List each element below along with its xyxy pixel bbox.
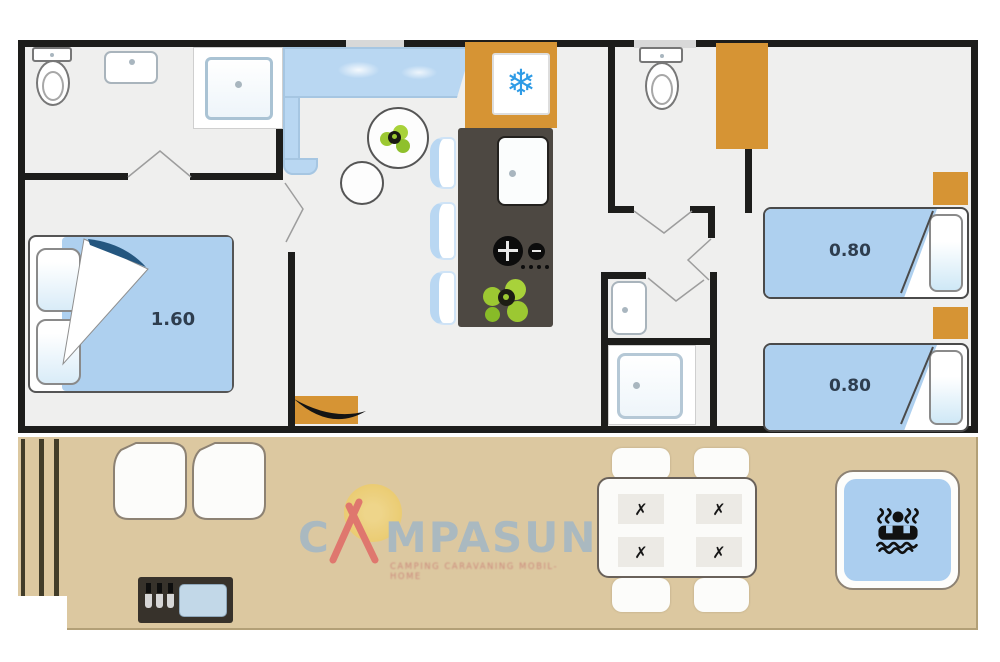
wall: [25, 173, 128, 180]
toilet-bowl: [645, 62, 679, 110]
dining-table: ✗ ✗ ✗ ✗: [597, 477, 757, 578]
shower: [193, 47, 283, 129]
burner-small: [528, 243, 545, 260]
bed-pillow: [36, 248, 81, 312]
logo-tagline: CAMPING CARAVANING MOBIL-HOME: [390, 562, 570, 582]
terrace-step: [21, 439, 25, 596]
knob: [537, 265, 541, 269]
shower: [608, 345, 696, 425]
single-bed: 0.80: [763, 207, 969, 299]
island-sink: [497, 136, 549, 206]
snowflake-icon: ❄: [506, 66, 536, 102]
bar-stool: [430, 202, 456, 260]
wall: [288, 252, 295, 426]
grill-tool: [146, 583, 151, 593]
cutlery-icon: ✗: [634, 543, 647, 562]
cutlery-icon: ✗: [634, 500, 647, 519]
plant: [380, 124, 414, 156]
terrace-step: [39, 439, 44, 596]
wall: [608, 206, 634, 213]
dining-chair: [694, 448, 749, 480]
grill-tool: [157, 583, 162, 593]
kitchen-counter-arm: [283, 96, 300, 162]
bar-stool: [430, 137, 456, 189]
terrace-notch: [18, 596, 67, 630]
wardrobe: [716, 43, 768, 149]
window-kitchen: [346, 40, 404, 48]
double-bed: 1.60: [28, 235, 234, 393]
bed-pillow: [36, 319, 81, 385]
washbasin: [104, 51, 158, 84]
knob: [521, 265, 525, 269]
kitchen-counter: [283, 47, 472, 98]
plancha-surface: [179, 584, 227, 617]
terrace-step: [54, 439, 59, 596]
cutlery-icon: ✗: [712, 500, 725, 519]
toilet-tank: [639, 47, 683, 63]
wall: [608, 338, 710, 345]
wall: [608, 47, 615, 213]
wall: [601, 272, 608, 426]
bed-size-label: 0.80: [815, 376, 885, 396]
knob: [529, 265, 533, 269]
cutlery-icon: ✗: [712, 543, 725, 562]
wall: [710, 272, 717, 426]
nightstand: [933, 172, 968, 205]
bar-stool: [430, 271, 456, 325]
bed-pillow: [929, 350, 963, 425]
tent-icon: [323, 496, 385, 564]
knob: [545, 265, 549, 269]
floorplan-canvas: 1.60 ❄: [0, 0, 1000, 662]
dining-chair: [694, 578, 749, 612]
dining-chair: [612, 578, 670, 612]
washbasin: [611, 281, 647, 335]
grill-tool: [168, 583, 173, 593]
place-setting: ✗: [618, 494, 664, 524]
wall: [745, 148, 752, 213]
toilet-bowl: [36, 60, 70, 106]
nightstand: [933, 307, 968, 339]
place-setting: ✗: [618, 537, 664, 567]
burner-large: [493, 236, 523, 266]
place-setting: ✗: [696, 494, 742, 524]
wall: [708, 206, 715, 238]
plant: [482, 277, 530, 323]
jacuzzi: [835, 470, 960, 590]
wall: [190, 173, 283, 180]
single-bed: 0.80: [763, 343, 969, 432]
place-setting: ✗: [696, 537, 742, 567]
campasun-logo: C MPASUN CAMPING CARAVANING MOBIL-HOME: [286, 478, 586, 578]
wall: [601, 272, 646, 279]
logo-letters: MPASUN: [385, 513, 598, 562]
bed-size-label: 0.80: [815, 241, 885, 261]
round-stool: [340, 161, 384, 205]
jacuzzi-person-icon: [872, 505, 924, 555]
bbq-plancha: [138, 577, 233, 623]
kitchen-counter-end: [283, 158, 318, 175]
dining-chair: [612, 448, 670, 480]
bed-pillow: [929, 214, 963, 292]
fridge: ❄: [492, 53, 550, 115]
bed-size-label: 1.60: [128, 309, 218, 330]
entrance-mat: [295, 396, 358, 424]
